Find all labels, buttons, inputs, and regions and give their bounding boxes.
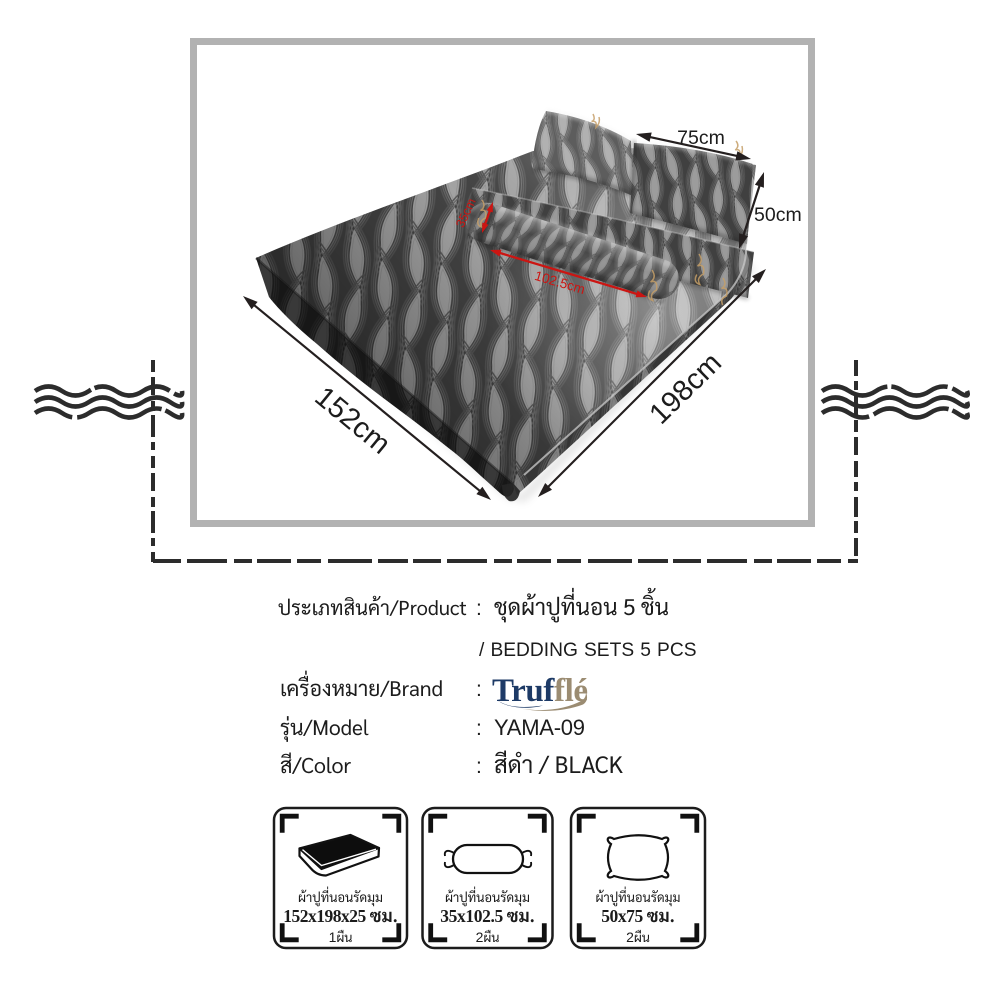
svg-text:2: 2 [476, 929, 484, 945]
svg-text:50cm: 50cm [754, 204, 802, 226]
svg-text:152x198x25: 152x198x25 [283, 906, 366, 926]
svg-text:1: 1 [329, 929, 337, 945]
svg-text:Trufflé: Trufflé [492, 673, 588, 709]
svg-text:2: 2 [626, 929, 634, 945]
svg-text:35x102.5: 35x102.5 [440, 906, 503, 926]
svg-text:/ BEDDING SETS 5 PCS: / BEDDING SETS 5 PCS [479, 640, 697, 661]
svg-text:50x75: 50x75 [601, 906, 643, 926]
svg-text::: : [476, 678, 482, 701]
svg-text:75cm: 75cm [677, 127, 725, 149]
svg-text::: : [476, 717, 482, 740]
svg-text::: : [476, 755, 482, 778]
svg-text::: : [476, 597, 482, 620]
svg-text:YAMA-09: YAMA-09 [494, 715, 585, 740]
